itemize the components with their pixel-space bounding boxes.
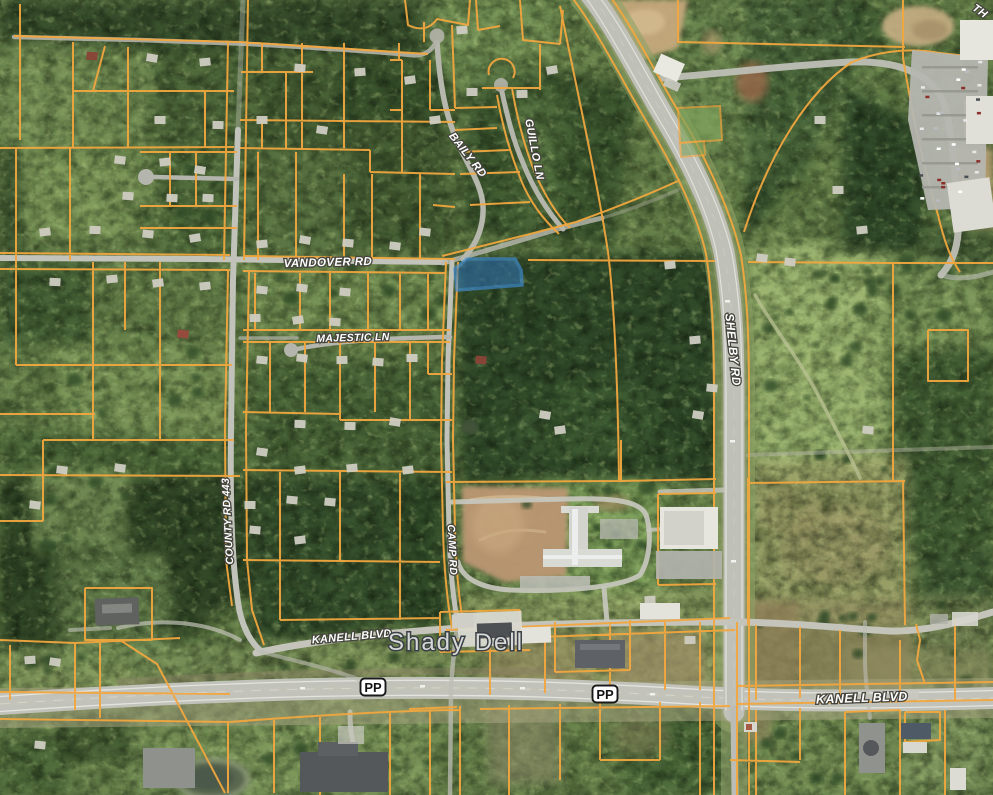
svg-text:PP: PP	[364, 680, 382, 695]
svg-text:PP: PP	[596, 687, 614, 702]
svg-text:VANDOVER RD: VANDOVER RD	[284, 256, 373, 270]
svg-text:Shady Dell: Shady Dell	[388, 629, 524, 656]
svg-text:MAJESTIC LN: MAJESTIC LN	[316, 331, 390, 345]
